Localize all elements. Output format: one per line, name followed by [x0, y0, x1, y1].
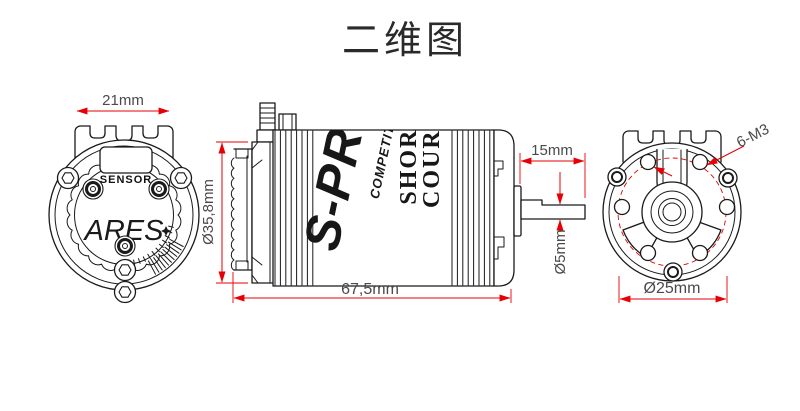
hex-screw	[58, 168, 79, 189]
dim-tab-width: 21mm	[77, 92, 169, 111]
rim-screw	[664, 263, 682, 281]
shaft-boss	[514, 186, 521, 236]
knurled-ring	[231, 149, 252, 270]
sensor-port	[100, 147, 152, 173]
m3-hole	[720, 200, 735, 215]
dim-bolt-circle-label: Ø25mm	[644, 280, 701, 297]
dim-shaft-diameter: Ø5mm	[552, 172, 569, 275]
front-endcap	[494, 130, 514, 286]
ringed-hole	[83, 179, 103, 199]
page-title: 二维图	[342, 20, 468, 62]
dim-bolt-circle: Ø25mm	[619, 276, 727, 303]
dim-shaft-diameter-label: Ø5mm	[552, 230, 569, 275]
solder-tab-block	[279, 114, 296, 130]
hex-screw	[171, 168, 192, 189]
m3-hole	[693, 155, 708, 170]
ringed-hole	[149, 179, 169, 199]
hex-screw	[115, 260, 136, 281]
m3-hole	[615, 200, 630, 215]
rim-screw	[608, 168, 626, 186]
hex-screw	[115, 282, 136, 303]
motor-2d-drawing: 二维图 SENSOR ARES 21mm	[0, 0, 800, 411]
marking-type-line2: COURSE	[419, 96, 445, 208]
m3-hole	[641, 155, 656, 170]
dim-mount-holes-label: 6-M3	[734, 121, 772, 152]
ringed-hole	[115, 236, 135, 256]
dim-shaft-length: 15mm	[520, 142, 585, 198]
output-shaft	[521, 200, 585, 219]
dim-tab-width-label: 21mm	[102, 92, 144, 109]
sensor-label: SENSOR	[100, 174, 152, 186]
rear-endbell-view: SENSOR ARES 21mm	[49, 92, 199, 303]
dim-diameter-label: Ø35,8mm	[200, 179, 217, 245]
m3-hole	[641, 246, 656, 261]
side-view: S-PRO COMPETITION SHORT COURSE Ø35,8mm	[200, 84, 585, 303]
technical-drawing-page: 二维图 SENSOR ARES 21mm	[0, 0, 800, 411]
rim-screw	[719, 169, 737, 187]
dim-length-label: 67,5mm	[341, 281, 399, 298]
front-view: 6-M3 Ø25mm	[603, 121, 772, 303]
bearing-and-shaft-end	[642, 182, 702, 242]
m3-hole	[693, 246, 708, 261]
dim-shaft-length-label: 15mm	[531, 142, 573, 159]
